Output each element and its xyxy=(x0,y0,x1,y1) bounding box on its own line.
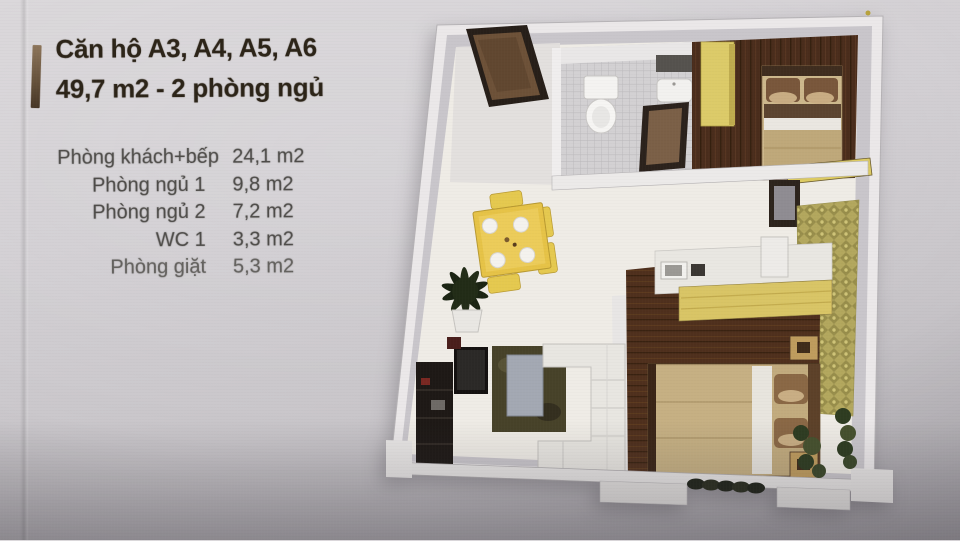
plant-pot xyxy=(452,310,482,332)
paper-speck xyxy=(866,11,871,16)
bathroom-left-wall xyxy=(552,48,561,186)
bathroom-sink xyxy=(657,79,692,102)
bed-bedroom-1 xyxy=(762,66,842,174)
toilet-tank xyxy=(584,76,618,99)
sink-faucet xyxy=(672,82,675,85)
bathroom-mirror xyxy=(656,55,693,72)
bathroom-door xyxy=(646,108,682,165)
wardrobe-side xyxy=(729,44,735,125)
coffee-table xyxy=(507,355,543,416)
dresser-mirror xyxy=(769,180,800,227)
decor-box xyxy=(447,337,461,349)
fridge-box xyxy=(761,237,788,277)
floor-plan-3d-render xyxy=(0,0,960,540)
toilet-seat xyxy=(592,106,610,128)
bathroom xyxy=(552,42,693,186)
counter-front xyxy=(679,280,832,321)
stove xyxy=(691,264,705,276)
tv xyxy=(454,347,488,394)
corner-block xyxy=(386,440,412,478)
bedroom-1 xyxy=(692,35,872,184)
balcony-pillar xyxy=(777,487,850,510)
corner-block xyxy=(851,468,893,503)
tv-cabinet xyxy=(416,362,453,464)
nightstand xyxy=(790,336,818,360)
balcony-pillar xyxy=(600,481,687,505)
kitchen-sink-basin xyxy=(665,265,682,276)
kitchen-counter xyxy=(655,237,832,321)
